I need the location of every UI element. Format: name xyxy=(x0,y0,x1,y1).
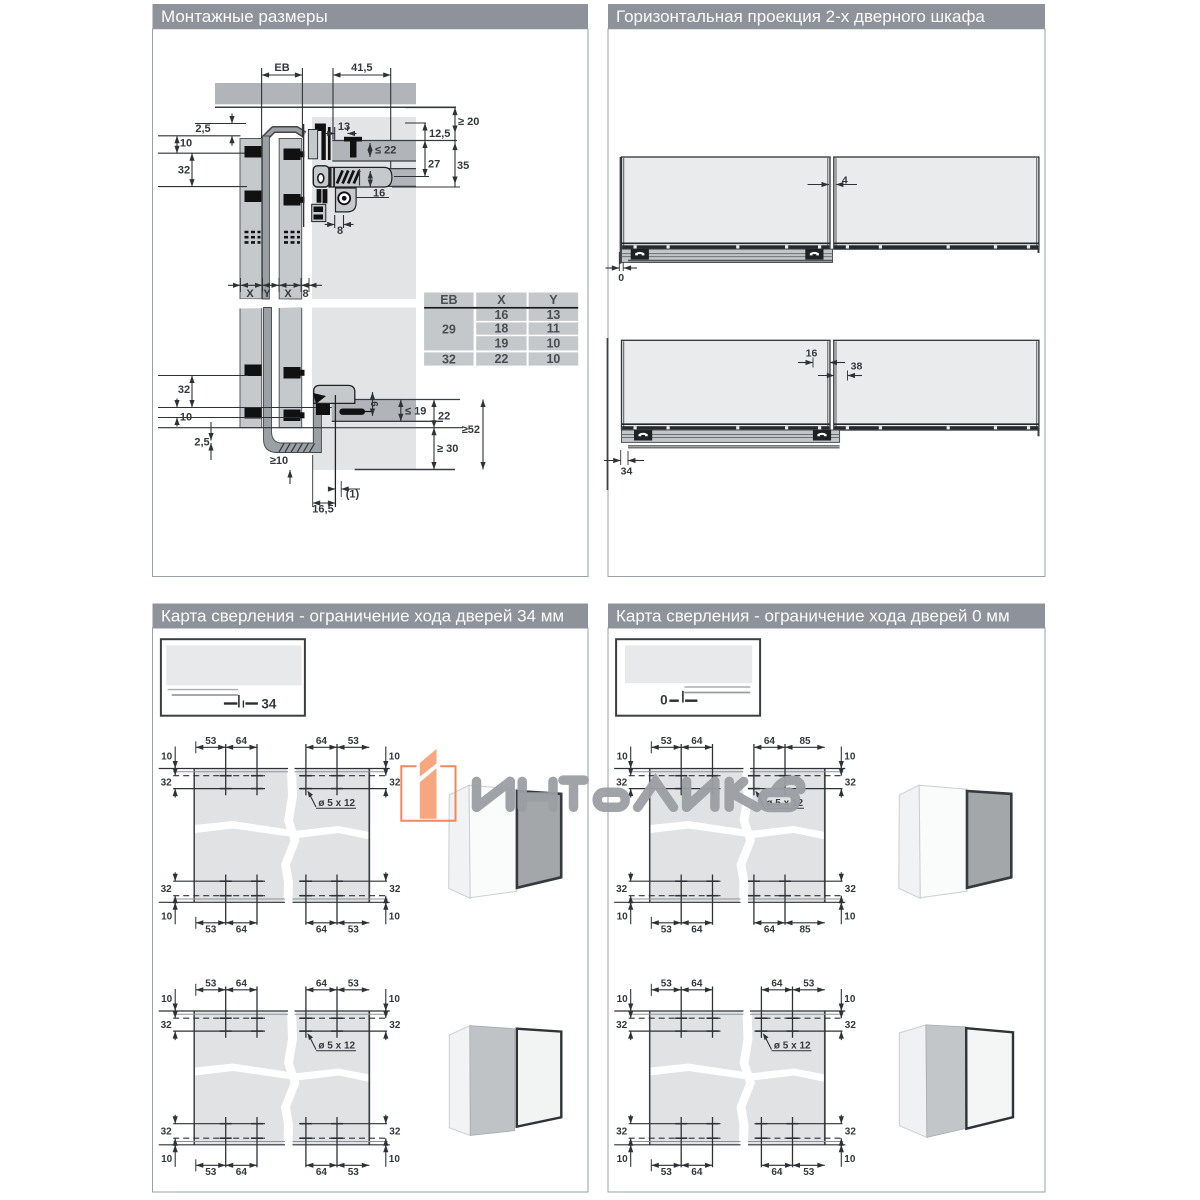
svg-text:64: 64 xyxy=(316,979,328,990)
svg-text:22: 22 xyxy=(438,411,450,423)
svg-text:X: X xyxy=(284,288,292,300)
svg-text:11: 11 xyxy=(547,322,560,336)
svg-text:9: 9 xyxy=(370,401,381,407)
svg-text:53: 53 xyxy=(803,979,815,990)
svg-text:10: 10 xyxy=(161,752,173,763)
svg-text:Карта сверления - ограничение: Карта сверления - ограничение хода двере… xyxy=(616,607,1010,626)
svg-text:64: 64 xyxy=(316,924,328,935)
svg-text:53: 53 xyxy=(205,979,217,990)
svg-text:53: 53 xyxy=(661,1167,673,1178)
svg-text:EB: EB xyxy=(440,293,457,307)
svg-text:64: 64 xyxy=(691,979,703,990)
svg-text:18: 18 xyxy=(494,322,508,336)
svg-text:≥10: ≥10 xyxy=(270,455,288,467)
svg-text:53: 53 xyxy=(348,1167,360,1178)
svg-text:32: 32 xyxy=(845,1020,857,1031)
svg-text:64: 64 xyxy=(764,736,776,747)
svg-text:32: 32 xyxy=(389,778,401,789)
svg-text:10: 10 xyxy=(180,412,192,424)
svg-text:41,5: 41,5 xyxy=(351,62,372,74)
svg-text:53: 53 xyxy=(348,979,360,990)
svg-text:2,5: 2,5 xyxy=(195,123,210,135)
svg-text:32: 32 xyxy=(616,884,628,895)
svg-text:X: X xyxy=(246,288,254,300)
svg-text:ø 5 x 12: ø 5 x 12 xyxy=(318,1041,355,1052)
svg-text:10: 10 xyxy=(389,994,401,1005)
svg-text:53: 53 xyxy=(205,736,217,747)
svg-text:2,5: 2,5 xyxy=(194,437,209,449)
svg-text:≤ 19: ≤ 19 xyxy=(405,406,426,418)
svg-text:≥52: ≥52 xyxy=(462,424,480,436)
svg-text:64: 64 xyxy=(316,1167,328,1178)
svg-text:Горизонтальная проекция 2-х дв: Горизонтальная проекция 2-х дверного шка… xyxy=(616,7,985,26)
svg-text:64: 64 xyxy=(236,924,248,935)
svg-text:X: X xyxy=(497,293,506,307)
svg-text:64: 64 xyxy=(236,736,248,747)
svg-text:Y: Y xyxy=(263,288,271,300)
svg-text:27: 27 xyxy=(428,159,440,171)
svg-text:32: 32 xyxy=(161,778,173,789)
svg-text:10: 10 xyxy=(180,138,192,150)
svg-text:10: 10 xyxy=(389,1154,401,1165)
svg-text:8: 8 xyxy=(302,288,308,300)
svg-text:(1): (1) xyxy=(346,489,360,501)
svg-text:10: 10 xyxy=(161,911,173,922)
svg-text:22: 22 xyxy=(494,352,508,366)
svg-text:32: 32 xyxy=(616,1020,628,1031)
svg-text:10: 10 xyxy=(844,1154,856,1165)
svg-text:64: 64 xyxy=(236,1167,248,1178)
svg-text:53: 53 xyxy=(348,736,360,747)
svg-text:Карта сверления - ограничение: Карта сверления - ограничение хода двере… xyxy=(161,607,564,626)
svg-text:Монтажные размеры: Монтажные размеры xyxy=(161,7,328,26)
svg-text:32: 32 xyxy=(442,352,456,366)
svg-text:10: 10 xyxy=(389,752,401,763)
svg-text:34: 34 xyxy=(621,466,633,478)
svg-text:32: 32 xyxy=(616,1126,628,1137)
svg-text:32: 32 xyxy=(616,778,628,789)
svg-text:10: 10 xyxy=(617,752,629,763)
svg-text:53: 53 xyxy=(348,924,360,935)
svg-text:53: 53 xyxy=(803,1167,815,1178)
svg-text:10: 10 xyxy=(844,752,856,763)
svg-text:32: 32 xyxy=(178,384,190,396)
svg-text:ø 5 x 12: ø 5 x 12 xyxy=(318,798,355,809)
svg-text:32: 32 xyxy=(845,884,857,895)
svg-text:≥ 30: ≥ 30 xyxy=(437,443,458,455)
svg-text:64: 64 xyxy=(691,1167,703,1178)
svg-text:38: 38 xyxy=(851,360,863,372)
svg-text:EB: EB xyxy=(274,62,289,74)
svg-text:10: 10 xyxy=(617,994,629,1005)
svg-text:32: 32 xyxy=(161,1020,173,1031)
svg-text:64: 64 xyxy=(771,979,783,990)
svg-text:10: 10 xyxy=(546,336,560,350)
svg-text:10: 10 xyxy=(617,911,629,922)
svg-text:19: 19 xyxy=(494,336,508,350)
svg-text:10: 10 xyxy=(844,994,856,1005)
svg-text:≥ 20: ≥ 20 xyxy=(458,116,479,128)
svg-text:16: 16 xyxy=(806,348,818,360)
svg-text:53: 53 xyxy=(205,1167,217,1178)
svg-text:16: 16 xyxy=(373,188,385,200)
svg-text:0: 0 xyxy=(660,693,668,708)
svg-text:53: 53 xyxy=(661,924,673,935)
svg-text:10: 10 xyxy=(389,911,401,922)
svg-text:13: 13 xyxy=(338,121,350,133)
svg-text:32: 32 xyxy=(389,1020,401,1031)
svg-text:32: 32 xyxy=(389,884,401,895)
svg-text:85: 85 xyxy=(799,924,811,935)
svg-text:32: 32 xyxy=(161,1126,173,1137)
svg-text:53: 53 xyxy=(661,736,673,747)
svg-text:29: 29 xyxy=(442,322,456,336)
svg-text:64: 64 xyxy=(691,736,703,747)
svg-text:64: 64 xyxy=(316,736,328,747)
svg-text:85: 85 xyxy=(799,736,811,747)
svg-text:10: 10 xyxy=(844,911,856,922)
svg-text:16,5: 16,5 xyxy=(312,504,333,516)
svg-text:8: 8 xyxy=(337,225,343,237)
svg-text:16: 16 xyxy=(494,308,508,322)
svg-text:10: 10 xyxy=(546,352,560,366)
svg-text:10: 10 xyxy=(617,1154,629,1165)
svg-text:10: 10 xyxy=(161,994,173,1005)
svg-text:Y: Y xyxy=(549,293,558,307)
svg-text:53: 53 xyxy=(661,979,673,990)
svg-text:≤ 22: ≤ 22 xyxy=(375,145,396,157)
svg-text:4: 4 xyxy=(842,175,848,187)
svg-text:ø 5 x 12: ø 5 x 12 xyxy=(774,1041,811,1052)
svg-text:64: 64 xyxy=(236,979,248,990)
svg-text:32: 32 xyxy=(845,1126,857,1137)
svg-text:32: 32 xyxy=(389,1126,401,1137)
svg-text:0: 0 xyxy=(618,272,624,284)
svg-text:64: 64 xyxy=(764,924,776,935)
svg-text:12,5: 12,5 xyxy=(429,128,450,140)
svg-text:32: 32 xyxy=(845,778,857,789)
svg-text:13: 13 xyxy=(546,308,560,322)
svg-text:32: 32 xyxy=(161,884,173,895)
svg-text:32: 32 xyxy=(178,165,190,177)
svg-text:10: 10 xyxy=(161,1154,173,1165)
svg-text:64: 64 xyxy=(691,924,703,935)
svg-text:64: 64 xyxy=(771,1167,783,1178)
svg-text:35: 35 xyxy=(457,160,469,172)
svg-text:53: 53 xyxy=(205,924,217,935)
svg-text:34: 34 xyxy=(261,697,277,712)
